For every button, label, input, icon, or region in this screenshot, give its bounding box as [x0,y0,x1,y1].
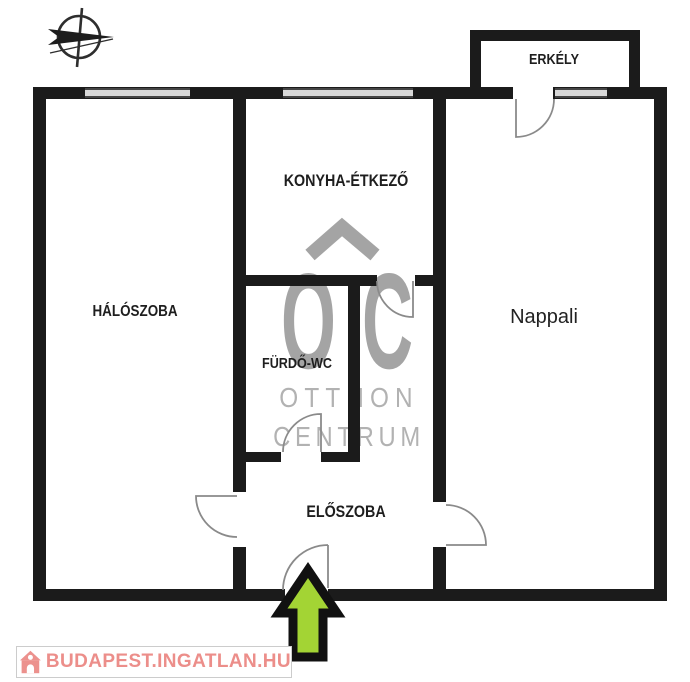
floor-plan: OC OTTHON CENTRUM [0,0,690,682]
wall-bottom-left [33,589,285,601]
site-logo-text: BUDAPEST.INGATLAN.HU [46,651,291,673]
bedroom-window [85,88,190,98]
balcony-wall-right [629,30,640,87]
room-label-bedroom: HÁLÓSZOBA [92,303,177,321]
room-label-balcony: ERKÉLY [529,51,579,68]
room-label-livingroom: Nappali [510,306,578,329]
house-logo-icon [20,648,41,676]
livingroom-wall-upper [433,99,446,502]
balcony-wall-top [470,30,640,41]
bathroom-wall-right [348,275,360,462]
site-logo: BUDAPEST.INGATLAN.HU [16,646,292,678]
wall-bottom-right [328,589,667,601]
bedroom-wall-upper [233,99,246,492]
wall-right [654,87,667,601]
kitchen-window [283,88,413,98]
wall-left [33,87,46,601]
livingroom-window [555,88,607,98]
bedroom-wall-lower [233,547,246,589]
room-label-bathroom: FÜRDŐ-WC [262,355,332,372]
room-label-kitchen: KONYHA-ÉTKEZŐ [284,171,409,191]
kitchen-wall-bottom-stub [415,275,433,286]
livingroom-wall-lower [433,547,446,589]
bathroom-wall-bottom-left [233,452,281,462]
balcony-wall-left [470,30,481,87]
bathroom-wall-bottom-right [321,452,360,462]
room-label-hall: ELŐSZOBA [306,502,385,522]
